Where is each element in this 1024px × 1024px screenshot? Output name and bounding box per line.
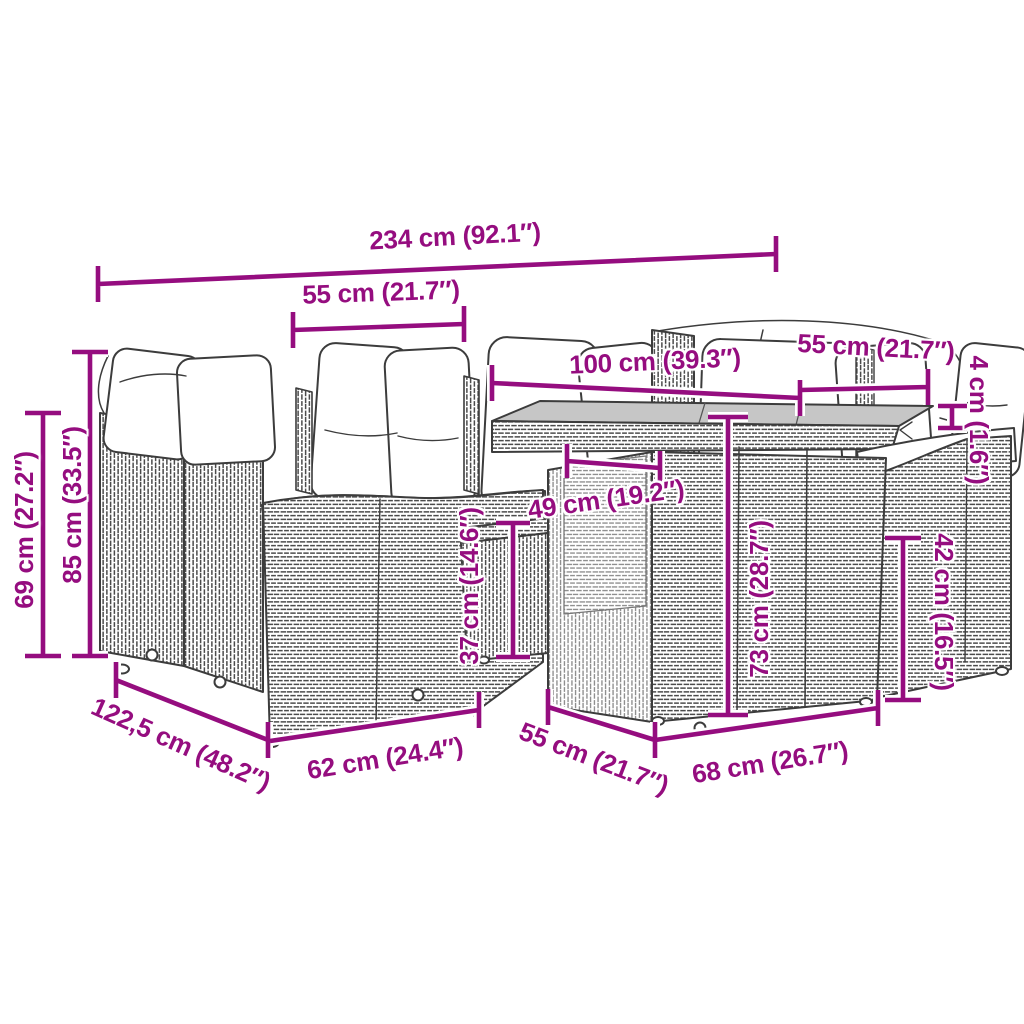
furniture-illustration — [0, 0, 1024, 1024]
sofa-back-panel-left-2 — [184, 427, 263, 692]
sofa-corner-post — [296, 388, 312, 494]
footstool-front — [461, 533, 548, 661]
pillow — [384, 347, 476, 509]
sofa-corner-post — [464, 376, 479, 494]
table-rim — [492, 421, 899, 452]
table-front-face — [652, 452, 886, 722]
table-recessed-panel — [564, 456, 646, 614]
dimension-diagram: 234 cm (92.1″) 55 cm (21.7″) 100 cm (39.… — [0, 0, 1024, 1024]
pillow — [176, 355, 275, 466]
